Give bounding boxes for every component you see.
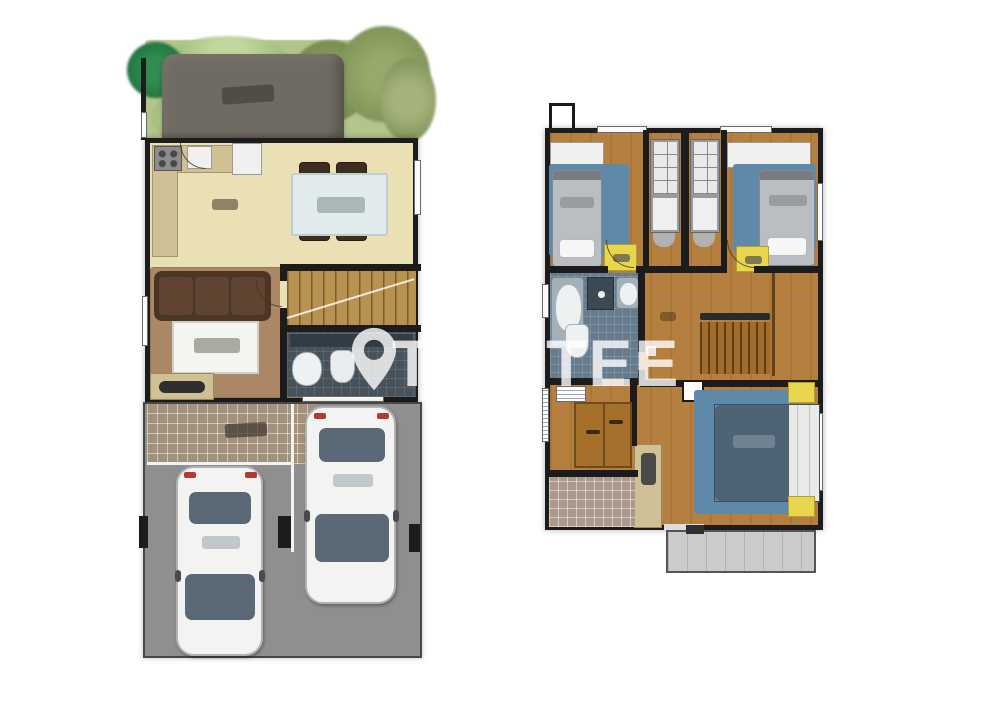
watermark-letter-fragment	[528, 338, 536, 380]
watermark: T TEE	[0, 0, 1000, 707]
location-pin-icon	[352, 326, 396, 392]
watermark-dot	[646, 346, 656, 356]
watermark-letters-right: TEE	[546, 330, 680, 396]
floorplan-canvas: T TEE	[0, 0, 1000, 707]
watermark-letter-left: T	[392, 330, 434, 396]
